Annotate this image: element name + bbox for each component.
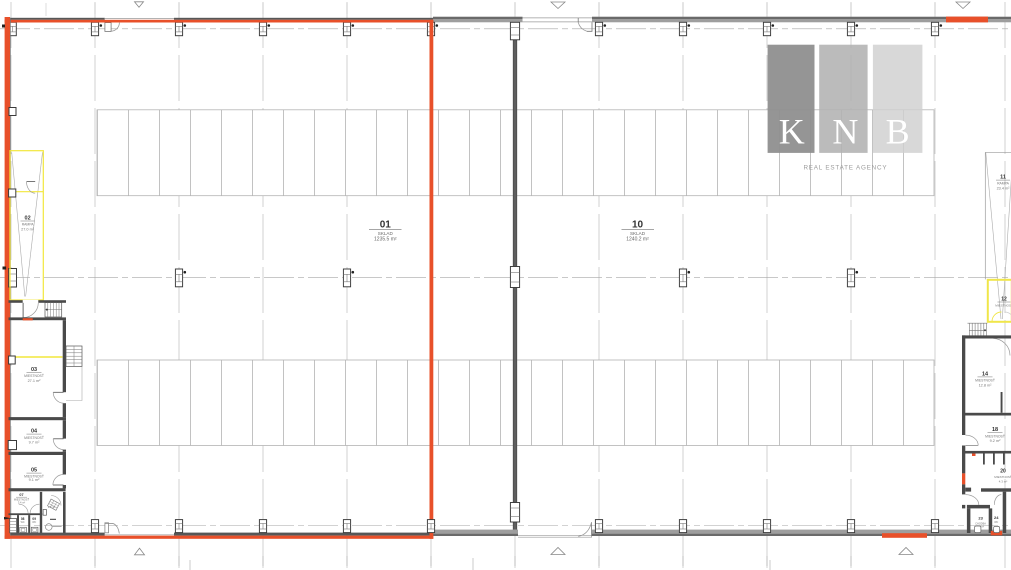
svg-text:4.3 m²: 4.3 m² bbox=[999, 479, 1008, 483]
svg-text:RAMPA: RAMPA bbox=[997, 182, 1010, 186]
svg-text:20: 20 bbox=[1000, 469, 1006, 475]
svg-text:WC: WC bbox=[994, 521, 998, 524]
svg-text:9.2 m²: 9.2 m² bbox=[990, 439, 1001, 443]
svg-text:23.4 m²: 23.4 m² bbox=[997, 187, 1011, 191]
svg-text:WC: WC bbox=[21, 521, 25, 524]
svg-text:02: 02 bbox=[25, 216, 31, 222]
svg-text:10: 10 bbox=[632, 220, 644, 231]
svg-text:MIESTNOSŤ: MIESTNOSŤ bbox=[985, 433, 1005, 438]
svg-text:1235.5 m²: 1235.5 m² bbox=[374, 237, 397, 243]
svg-text:24: 24 bbox=[994, 515, 999, 520]
svg-text:SKLAD: SKLAD bbox=[378, 231, 394, 236]
svg-text:18: 18 bbox=[992, 427, 998, 433]
svg-text:12.8 m²: 12.8 m² bbox=[979, 383, 993, 387]
svg-text:04: 04 bbox=[31, 429, 38, 435]
svg-text:07: 07 bbox=[19, 493, 23, 497]
svg-text:MIESTNOSŤ: MIESTNOSŤ bbox=[24, 373, 44, 378]
svg-text:27.0 m²: 27.0 m² bbox=[21, 228, 35, 232]
svg-text:14: 14 bbox=[982, 371, 989, 377]
svg-text:27.1 m²: 27.1 m² bbox=[28, 379, 42, 383]
svg-text:23: 23 bbox=[978, 515, 983, 520]
svg-text:05: 05 bbox=[31, 468, 37, 474]
svg-text:K: K bbox=[779, 111, 805, 151]
svg-text:2.6 m²: 2.6 m² bbox=[48, 505, 55, 509]
svg-text:RAMPA: RAMPA bbox=[22, 223, 35, 227]
svg-text:WC: WC bbox=[32, 521, 36, 524]
svg-text:9.1 m²: 9.1 m² bbox=[29, 478, 40, 482]
svg-text:11: 11 bbox=[1000, 175, 1006, 181]
svg-text:N: N bbox=[832, 111, 858, 151]
svg-text:01: 01 bbox=[380, 220, 392, 231]
svg-text:03: 03 bbox=[31, 367, 37, 373]
svg-text:SKLAD: SKLAD bbox=[630, 231, 646, 236]
svg-text:MIESTNOSŤ: MIESTNOSŤ bbox=[24, 435, 44, 440]
svg-text:MIESTNOSŤ: MIESTNOSŤ bbox=[994, 474, 1011, 479]
svg-text:REAL ESTATE AGENCY: REAL ESTATE AGENCY bbox=[803, 165, 887, 172]
svg-text:B: B bbox=[886, 111, 910, 151]
svg-text:9.7 m²: 9.7 m² bbox=[29, 441, 40, 445]
svg-text:MIESTNOSŤ: MIESTNOSŤ bbox=[975, 378, 995, 383]
svg-text:1240.2 m²: 1240.2 m² bbox=[626, 237, 649, 243]
svg-text:MIESTNOSŤ: MIESTNOSŤ bbox=[995, 302, 1011, 307]
